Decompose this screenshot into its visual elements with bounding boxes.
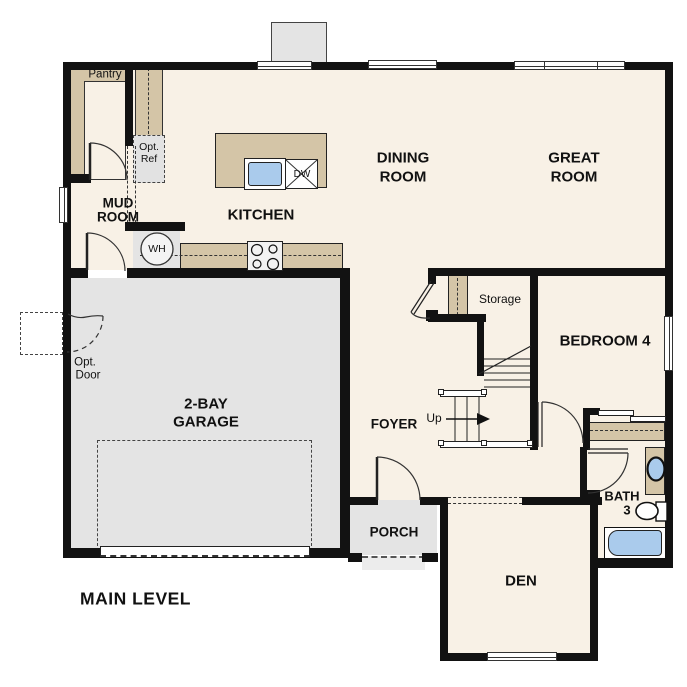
mudroom-door-arc [87,233,125,271]
burner [252,245,263,256]
storage-door-arc [411,312,430,318]
opt-ref-label-2: Ref [141,154,157,165]
burner [269,245,277,253]
porch-label: PORCH [370,525,419,539]
dining-room-label-1: DINING [377,151,430,166]
dining-room-label-2: ROOM [380,170,427,185]
front-door-arc [377,457,420,500]
opt-door-label-1: Opt. [74,357,96,369]
toilet-bowl [636,503,658,520]
mud-room-label-1: MUD [103,196,134,210]
burner [253,260,261,268]
opt-door-label-2: Door [76,370,101,382]
pantry-label: Pantry [88,69,121,81]
up-label: Up [426,412,441,424]
bath3-label-1: BATH [604,490,639,503]
bath3-label-2: 3 [623,504,630,517]
den-label: DEN [505,574,537,589]
great-room-label-2: ROOM [551,170,598,185]
bath3-door-arc [588,453,628,493]
garage-label-1: 2-BAY [184,397,228,412]
dishwasher-label: DW [294,170,311,180]
storage-label: Storage [479,293,521,305]
burner [268,259,279,270]
bath-sink [648,458,665,481]
bedroom4-door-arc [542,402,583,443]
storage-door-leaf [411,281,431,312]
floor-plan: Pantry Opt. Ref MUD ROOM KITCHEN DINING … [0,0,687,687]
pantry-door-arc [90,143,127,180]
level-title: MAIN LEVEL [80,590,191,608]
mud-room-label-2: ROOM [97,210,139,224]
up-arrow-head [477,413,490,425]
storage-door-leaf [414,283,434,314]
water-heater-label: WH [148,244,166,255]
optional-door-leaf [68,314,103,318]
bedroom4-label: BEDROOM 4 [560,334,651,349]
kitchen-label: KITCHEN [228,208,295,223]
stair-winder-diagonal [479,346,531,374]
optional-door-arc [67,316,103,352]
foyer-label: FOYER [371,417,418,431]
great-room-label-1: GREAT [548,151,599,166]
garage-label-2: GARAGE [173,415,239,430]
opt-ref-label-1: Opt. [139,142,159,153]
